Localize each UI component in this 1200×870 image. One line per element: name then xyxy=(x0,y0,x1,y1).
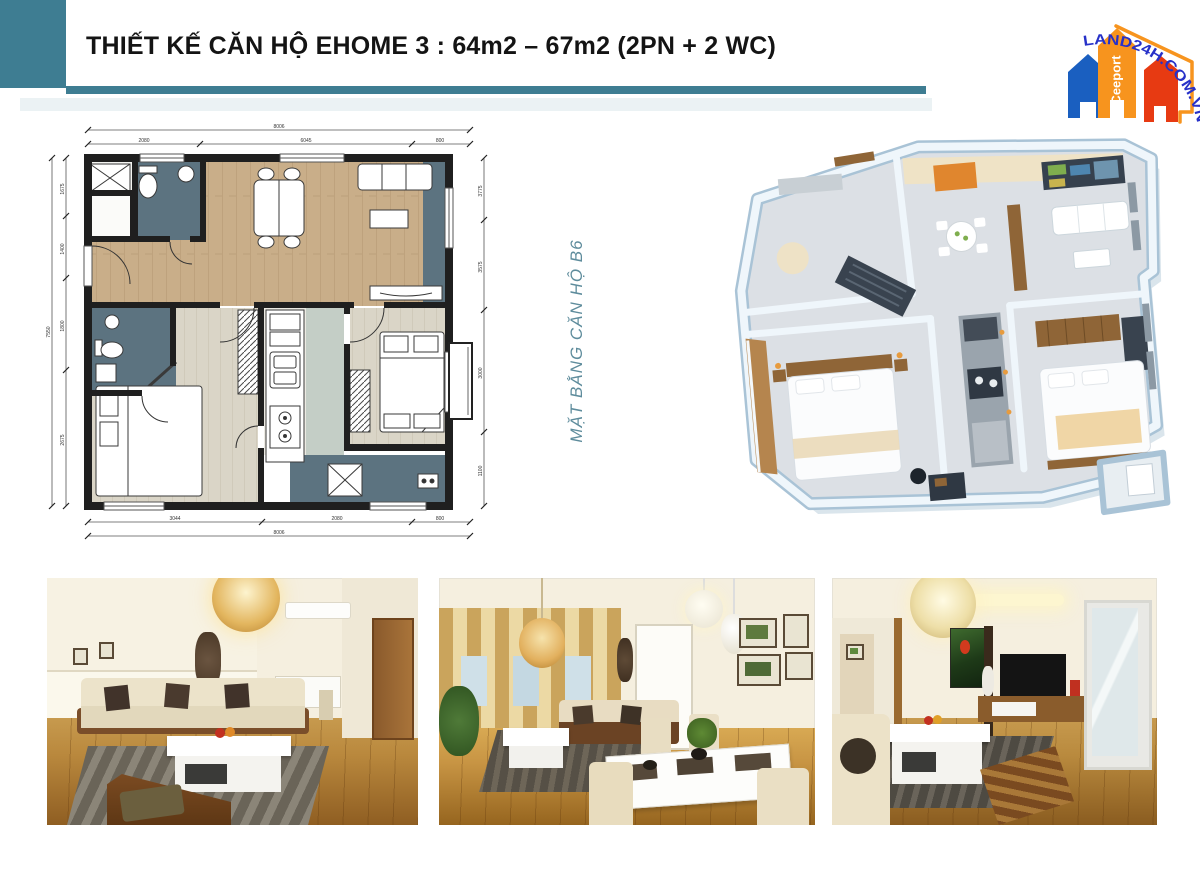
white-pendant xyxy=(685,590,723,628)
dim-left-1: 1675 xyxy=(60,183,66,194)
dim-left-3: 1800 xyxy=(60,320,66,331)
pillow xyxy=(104,685,130,711)
small-frame xyxy=(99,642,114,659)
table-shelf xyxy=(185,764,227,784)
wall-art xyxy=(617,638,633,682)
glass-door xyxy=(1092,608,1138,756)
header-sub-bar xyxy=(20,98,932,111)
bowl xyxy=(691,748,707,760)
dim-right-2: 3575 xyxy=(478,261,484,272)
balcony-bottom-right-3d xyxy=(1099,453,1167,512)
window-sky xyxy=(565,656,591,706)
fruit xyxy=(933,715,942,724)
logo-brand-text: Ceeport xyxy=(1108,55,1123,105)
wardrobe-2 xyxy=(350,370,370,432)
service-shaft xyxy=(328,464,362,496)
white-vase xyxy=(982,666,994,696)
dim-top-1: 2080 xyxy=(138,138,149,144)
plant xyxy=(439,686,479,756)
dining-set xyxy=(254,168,304,248)
land24h-logo: Ceeport LAND24H.COM.VN xyxy=(1054,0,1200,135)
brochure-slide: THIẾT KẾ CĂN HỘ EHOME 3 : 64m2 – 67m2 (2… xyxy=(0,0,1200,870)
wall-art xyxy=(933,162,977,192)
colorful-art xyxy=(950,628,986,688)
frame xyxy=(739,618,777,648)
dim-left-4: 2675 xyxy=(60,434,66,445)
dim-bot-overall: 8006 xyxy=(273,530,284,536)
dim-bot-2: 2080 xyxy=(331,516,342,522)
lamp-cord xyxy=(541,578,543,622)
dim-left-overall: 7550 xyxy=(46,326,52,337)
dim-right-1: 3775 xyxy=(478,185,484,196)
pillow xyxy=(572,705,593,725)
coffee-table-body xyxy=(509,746,563,768)
interior-photo-2 xyxy=(439,578,815,825)
fruit xyxy=(924,716,933,725)
interior-photo-1 xyxy=(47,578,418,825)
dim-right-4: 1100 xyxy=(478,465,484,476)
lamp-cord xyxy=(733,578,735,618)
coffee-table-top xyxy=(167,736,291,756)
small-frame xyxy=(73,648,88,665)
floor-plan-3d xyxy=(700,125,1195,545)
floor-plan-2d: 8006 2080 6045 800 7550 1675 1400 1800 2… xyxy=(40,118,540,568)
air-conditioner xyxy=(285,602,351,619)
balcony-vent xyxy=(418,474,438,488)
plan-2d-caption: MẶT BẰNG CĂN HỘ B6 xyxy=(567,216,587,466)
dark-pillow xyxy=(840,738,876,774)
frame-art xyxy=(850,648,858,654)
dining-chair xyxy=(757,768,809,825)
ceiling-light xyxy=(972,594,1064,606)
tv-cabinet xyxy=(370,286,442,300)
frame-art xyxy=(746,625,768,639)
tv xyxy=(1000,654,1066,702)
art-detail xyxy=(960,640,970,654)
header-accent-block xyxy=(0,0,66,88)
washing-machine xyxy=(90,164,130,192)
bed-2 xyxy=(380,332,444,432)
coffee-table-top xyxy=(884,724,990,742)
kitchen-counter xyxy=(266,310,304,462)
frame-art xyxy=(745,662,771,676)
centerpiece-plant xyxy=(687,718,717,748)
pillow xyxy=(164,683,190,709)
dim-top-overall: 8006 xyxy=(273,124,284,130)
wardrobe-1 xyxy=(238,310,258,394)
bowl xyxy=(643,760,657,770)
pillow xyxy=(620,705,642,725)
frame xyxy=(737,654,781,686)
dining-chair-back xyxy=(641,718,671,754)
dim-right-3: 3000 xyxy=(478,367,484,378)
bedroom-right-3d xyxy=(1035,312,1158,470)
dim-bot-3: 800 xyxy=(436,516,445,522)
console-drawer xyxy=(992,702,1036,716)
dim-top-3: 800 xyxy=(436,138,445,144)
dim-top-2: 6045 xyxy=(300,138,311,144)
fruit xyxy=(225,727,235,737)
dim-bot-1: 3044 xyxy=(169,516,180,522)
red-vase xyxy=(1070,680,1080,696)
table-shelf xyxy=(902,752,936,772)
dining-chair xyxy=(319,690,333,720)
dining-chair xyxy=(589,762,633,825)
title-underline xyxy=(66,86,926,94)
frame xyxy=(783,614,809,648)
entry-door xyxy=(372,618,414,740)
side-balcony xyxy=(449,343,472,419)
fruit xyxy=(215,728,225,738)
frame xyxy=(785,652,813,680)
coffee-table xyxy=(503,728,569,746)
pillow xyxy=(224,683,250,709)
small-frame xyxy=(846,644,864,660)
page-title: THIẾT KẾ CĂN HỘ EHOME 3 : 64m2 – 67m2 (2… xyxy=(86,32,776,61)
interior-photo-3 xyxy=(832,578,1157,825)
wicker-lamp xyxy=(519,618,565,668)
dim-left-2: 1400 xyxy=(60,243,66,254)
